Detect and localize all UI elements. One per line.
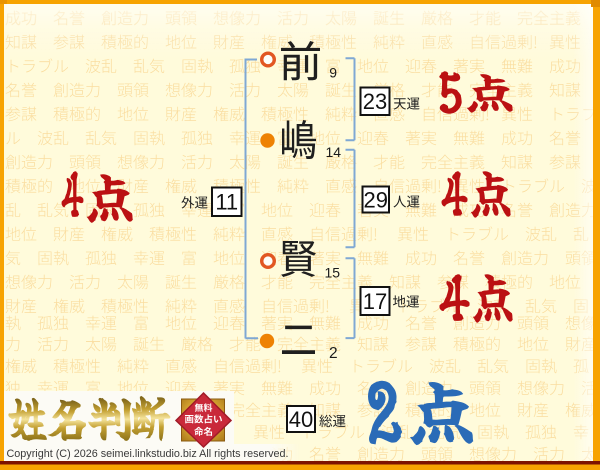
svg-text:23: 23: [363, 89, 387, 114]
svg-text:14: 14: [326, 144, 342, 160]
svg-text:40: 40: [289, 407, 313, 432]
svg-text:2: 2: [329, 345, 338, 362]
svg-text:9: 9: [329, 65, 337, 81]
svg-text:15: 15: [325, 265, 341, 281]
svg-text:17: 17: [363, 289, 387, 314]
svg-text:11: 11: [215, 190, 238, 215]
svg-text:Copyright (C) 2026 seimei.link: Copyright (C) 2026 seimei.linkstudio.biz…: [7, 448, 289, 460]
svg-text:29: 29: [364, 187, 388, 212]
